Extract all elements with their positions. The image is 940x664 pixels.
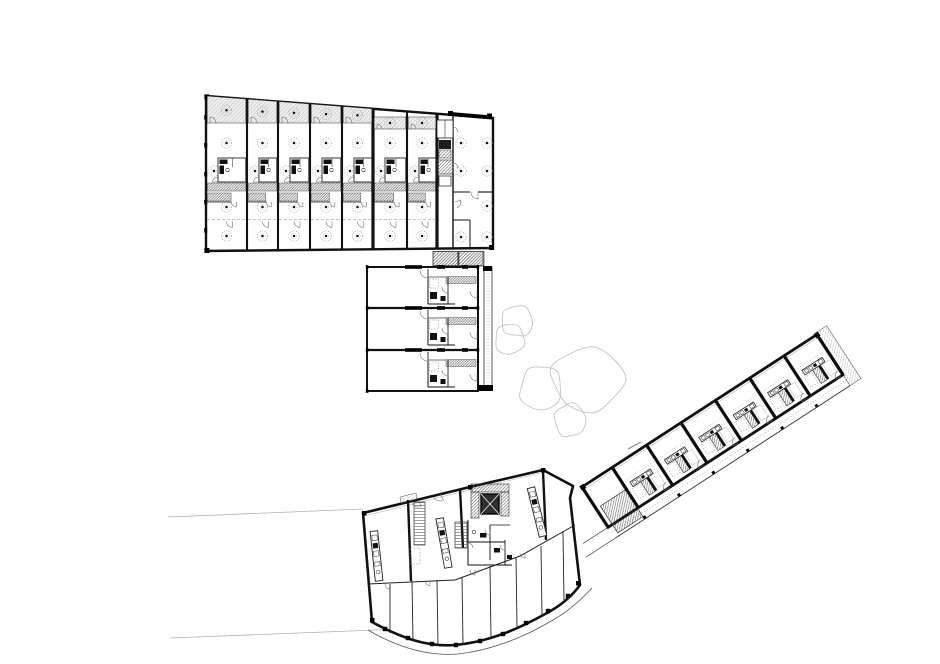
floor-plan-canvas [0, 0, 940, 664]
building-b-maisonette-block [366, 265, 493, 393]
building-a-hotel-block [204, 94, 494, 265]
floor-plan-page [0, 0, 940, 664]
walkway-connector-a-b [433, 252, 484, 267]
